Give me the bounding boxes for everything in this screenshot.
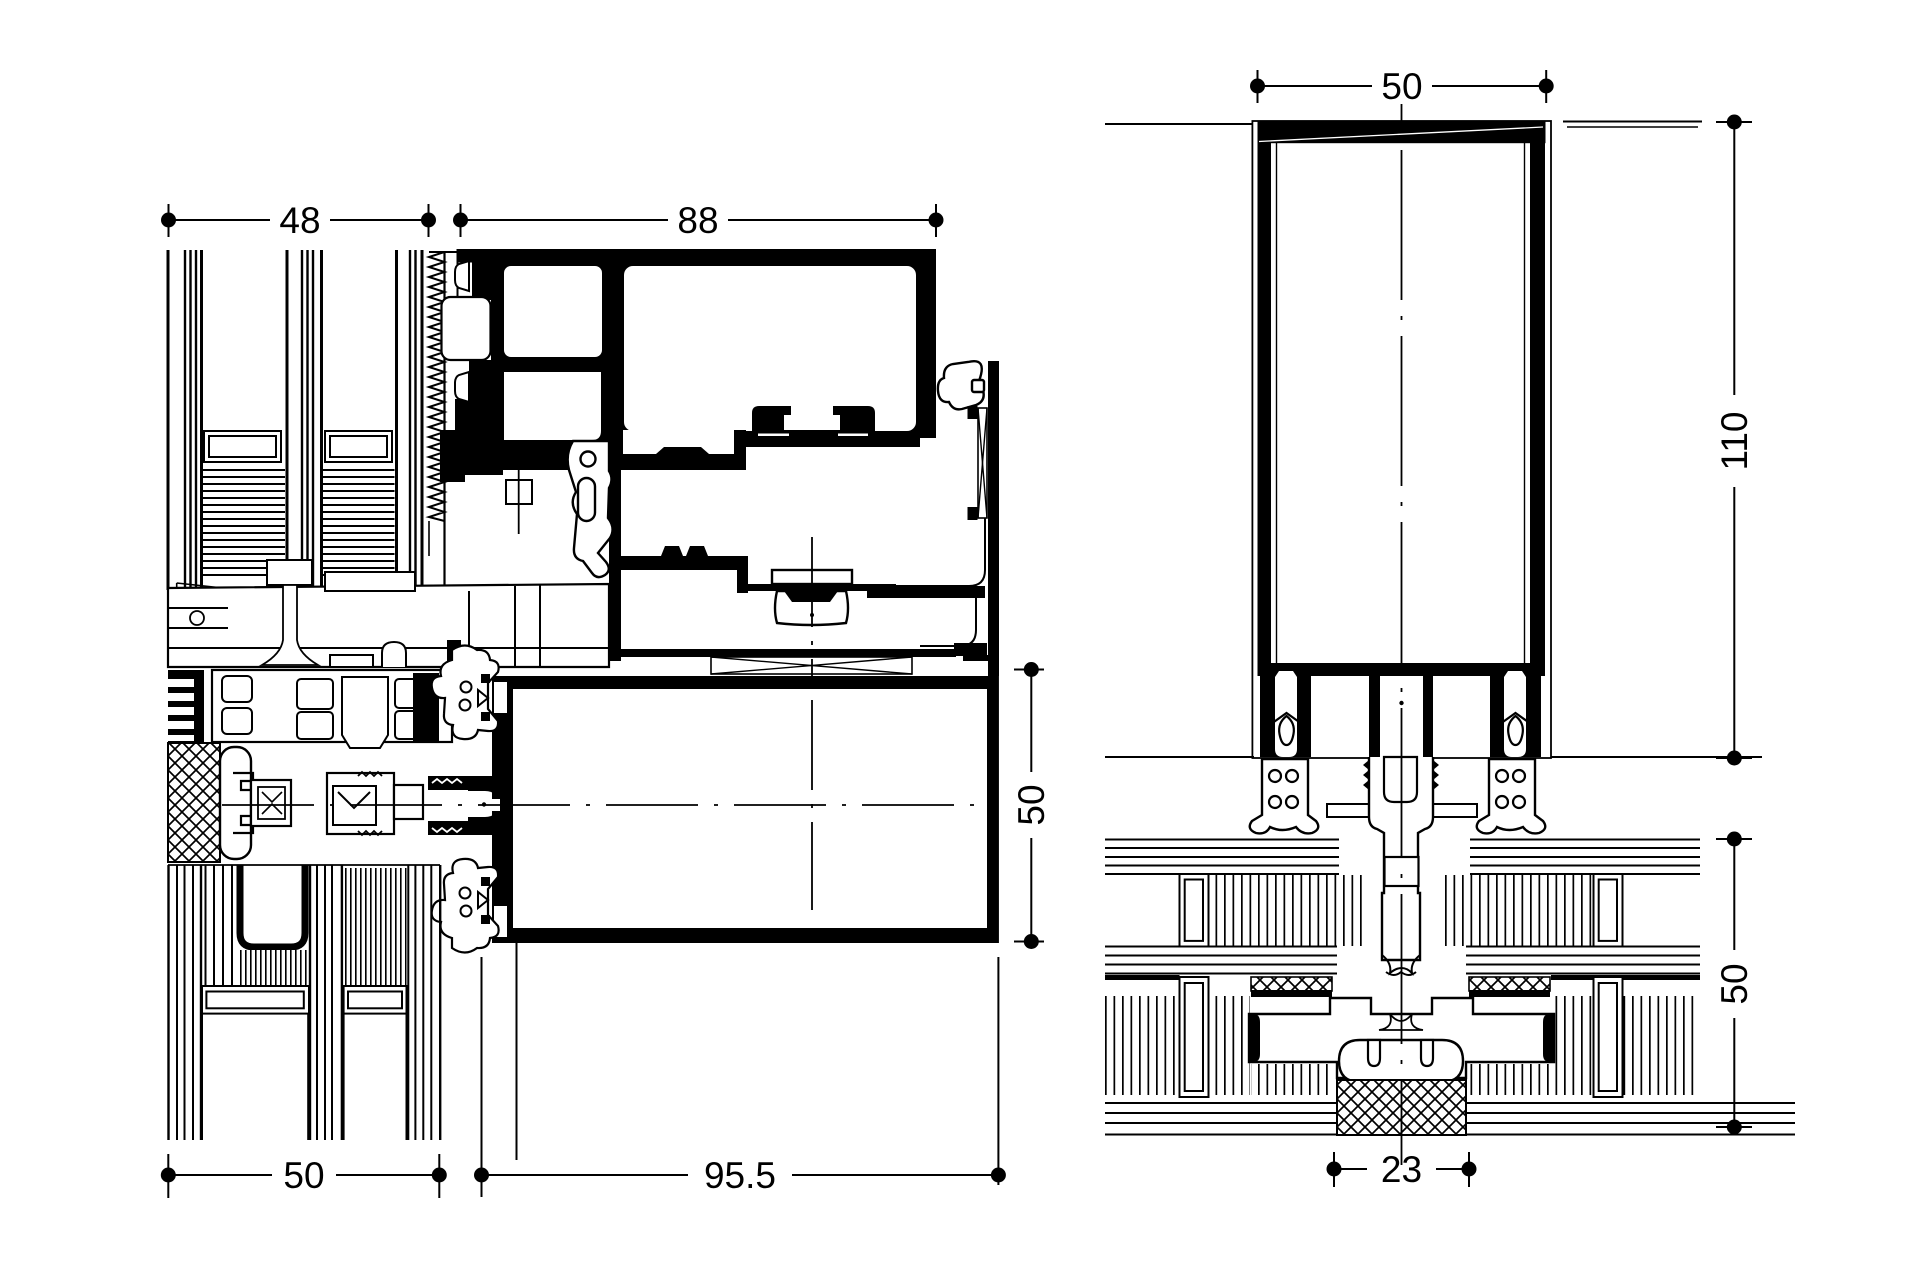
svg-text:50: 50 xyxy=(283,1155,324,1196)
svg-text:110: 110 xyxy=(1714,412,1755,471)
svg-text:88: 88 xyxy=(677,200,718,241)
svg-text:48: 48 xyxy=(279,200,320,241)
svg-text:95.5: 95.5 xyxy=(704,1155,776,1196)
svg-text:50: 50 xyxy=(1714,963,1755,1004)
svg-text:50: 50 xyxy=(1011,784,1052,825)
svg-text:50: 50 xyxy=(1381,66,1422,107)
